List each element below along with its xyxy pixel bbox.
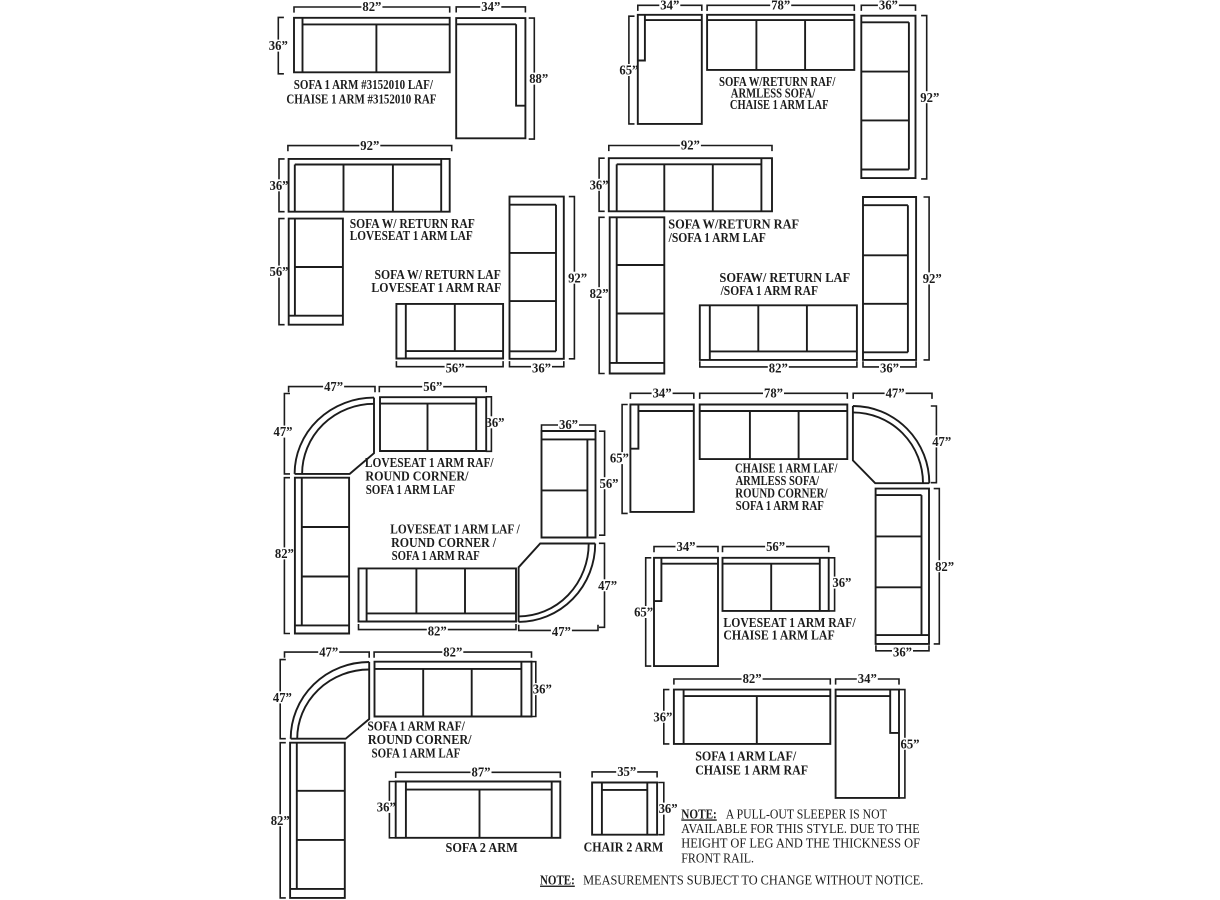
svg-text:92”: 92” bbox=[920, 90, 939, 105]
svg-text:82”: 82” bbox=[271, 813, 290, 828]
svg-text:56”: 56” bbox=[766, 539, 785, 554]
svg-text:82”: 82” bbox=[362, 0, 381, 14]
svg-text:47”: 47” bbox=[598, 578, 617, 593]
svg-text:65”: 65” bbox=[610, 451, 629, 466]
svg-text:NOTE:: NOTE: bbox=[540, 873, 575, 888]
svg-text:92”: 92” bbox=[681, 138, 700, 153]
svg-text:CHAIR 2 ARM: CHAIR 2 ARM bbox=[584, 839, 664, 854]
svg-text:47”: 47” bbox=[319, 644, 338, 659]
svg-text:92”: 92” bbox=[923, 271, 942, 286]
svg-text:82”: 82” bbox=[275, 546, 294, 561]
svg-text:36”: 36” bbox=[832, 575, 851, 590]
svg-text:SOFA 1 ARM LAF/: SOFA 1 ARM LAF/ bbox=[695, 749, 796, 764]
svg-text:36”: 36” bbox=[533, 682, 552, 697]
svg-text:LOVESEAT 1 ARM LAF: LOVESEAT 1 ARM LAF bbox=[350, 228, 473, 243]
svg-text:47”: 47” bbox=[552, 624, 571, 639]
svg-text:82”: 82” bbox=[590, 286, 609, 301]
svg-text:34”: 34” bbox=[653, 386, 672, 401]
svg-text:/SOFA 1 ARM RAF: /SOFA 1 ARM RAF bbox=[720, 283, 818, 298]
svg-text:34”: 34” bbox=[677, 539, 696, 554]
svg-text:56”: 56” bbox=[600, 476, 619, 491]
svg-text:SOFA 1 ARM LAF: SOFA 1 ARM LAF bbox=[366, 482, 455, 497]
svg-text:78”: 78” bbox=[771, 0, 790, 13]
svg-text:36”: 36” bbox=[659, 801, 678, 816]
svg-text:47”: 47” bbox=[932, 434, 951, 449]
svg-text:36”: 36” bbox=[269, 38, 288, 53]
svg-text:/SOFA 1 ARM LAF: /SOFA 1 ARM LAF bbox=[668, 230, 766, 245]
svg-text:56”: 56” bbox=[446, 361, 465, 376]
svg-text:35”: 35” bbox=[617, 764, 636, 779]
svg-text:36”: 36” bbox=[270, 178, 289, 193]
svg-text:47”: 47” bbox=[274, 424, 293, 439]
svg-text:82”: 82” bbox=[935, 559, 954, 574]
svg-text:88”: 88” bbox=[529, 71, 548, 86]
svg-text:AVAILABLE FOR THIS STYLE. DUE: AVAILABLE FOR THIS STYLE. DUE TO THE bbox=[681, 821, 919, 836]
svg-text:SOFA 1 ARM LAF: SOFA 1 ARM LAF bbox=[372, 745, 461, 760]
svg-text:65”: 65” bbox=[901, 736, 920, 751]
svg-text:34”: 34” bbox=[660, 0, 679, 13]
svg-text:34”: 34” bbox=[858, 671, 877, 686]
svg-text:36”: 36” bbox=[590, 177, 609, 192]
svg-text:47”: 47” bbox=[886, 386, 905, 401]
svg-text:CHAISE 1 ARM RAF: CHAISE 1 ARM RAF bbox=[695, 762, 808, 777]
svg-text:36”: 36” bbox=[377, 800, 396, 815]
svg-text:36”: 36” bbox=[653, 709, 672, 724]
svg-text:CHAISE 1 ARM LAF: CHAISE 1 ARM LAF bbox=[730, 97, 829, 112]
svg-text:FRONT RAIL.: FRONT RAIL. bbox=[681, 850, 754, 865]
svg-text:92”: 92” bbox=[568, 270, 587, 285]
svg-text:SOFA 1 ARM RAF: SOFA 1 ARM RAF bbox=[392, 548, 480, 563]
svg-text:LOVESEAT 1 ARM RAF: LOVESEAT 1 ARM RAF bbox=[371, 280, 501, 295]
svg-text:47”: 47” bbox=[324, 379, 343, 394]
svg-text:A PULL-OUT SLEEPER IS NOT: A PULL-OUT SLEEPER IS NOT bbox=[726, 806, 887, 821]
svg-text:82”: 82” bbox=[769, 361, 788, 376]
svg-text:82”: 82” bbox=[428, 623, 447, 638]
svg-text:CHAISE 1 ARM #3152010 RAF: CHAISE 1 ARM #3152010 RAF bbox=[286, 91, 436, 106]
svg-text:NOTE:: NOTE: bbox=[681, 806, 717, 821]
svg-text:56”: 56” bbox=[270, 264, 289, 279]
svg-text:MEASUREMENTS SUBJECT TO CHANGE: MEASUREMENTS SUBJECT TO CHANGE WITHOUT N… bbox=[583, 873, 923, 888]
svg-text:34”: 34” bbox=[481, 0, 500, 14]
svg-text:87”: 87” bbox=[472, 765, 491, 780]
svg-text:36”: 36” bbox=[532, 361, 551, 376]
svg-text:47”: 47” bbox=[273, 690, 292, 705]
svg-text:36”: 36” bbox=[880, 361, 899, 376]
svg-text:65”: 65” bbox=[634, 605, 653, 620]
svg-text:HEIGHT OF LEG AND THE THICKNES: HEIGHT OF LEG AND THE THICKNESS OF bbox=[681, 836, 920, 851]
svg-text:82”: 82” bbox=[443, 644, 462, 659]
svg-text:56”: 56” bbox=[423, 379, 442, 394]
svg-text:SOFA 1 ARM #3152010 LAF/: SOFA 1 ARM #3152010 LAF/ bbox=[294, 77, 433, 92]
svg-text:CHAISE 1 ARM LAF: CHAISE 1 ARM LAF bbox=[723, 628, 834, 643]
svg-text:82”: 82” bbox=[743, 671, 762, 686]
svg-text:78”: 78” bbox=[764, 386, 783, 401]
svg-text:36”: 36” bbox=[486, 415, 505, 430]
svg-text:SOFA 1 ARM RAF: SOFA 1 ARM RAF bbox=[736, 498, 824, 513]
svg-text:36”: 36” bbox=[893, 645, 912, 660]
svg-text:SOFA 2 ARM: SOFA 2 ARM bbox=[446, 840, 519, 855]
svg-text:36”: 36” bbox=[559, 417, 578, 432]
svg-text:36”: 36” bbox=[879, 0, 898, 13]
svg-text:92”: 92” bbox=[360, 138, 379, 153]
svg-text:65”: 65” bbox=[619, 63, 638, 78]
